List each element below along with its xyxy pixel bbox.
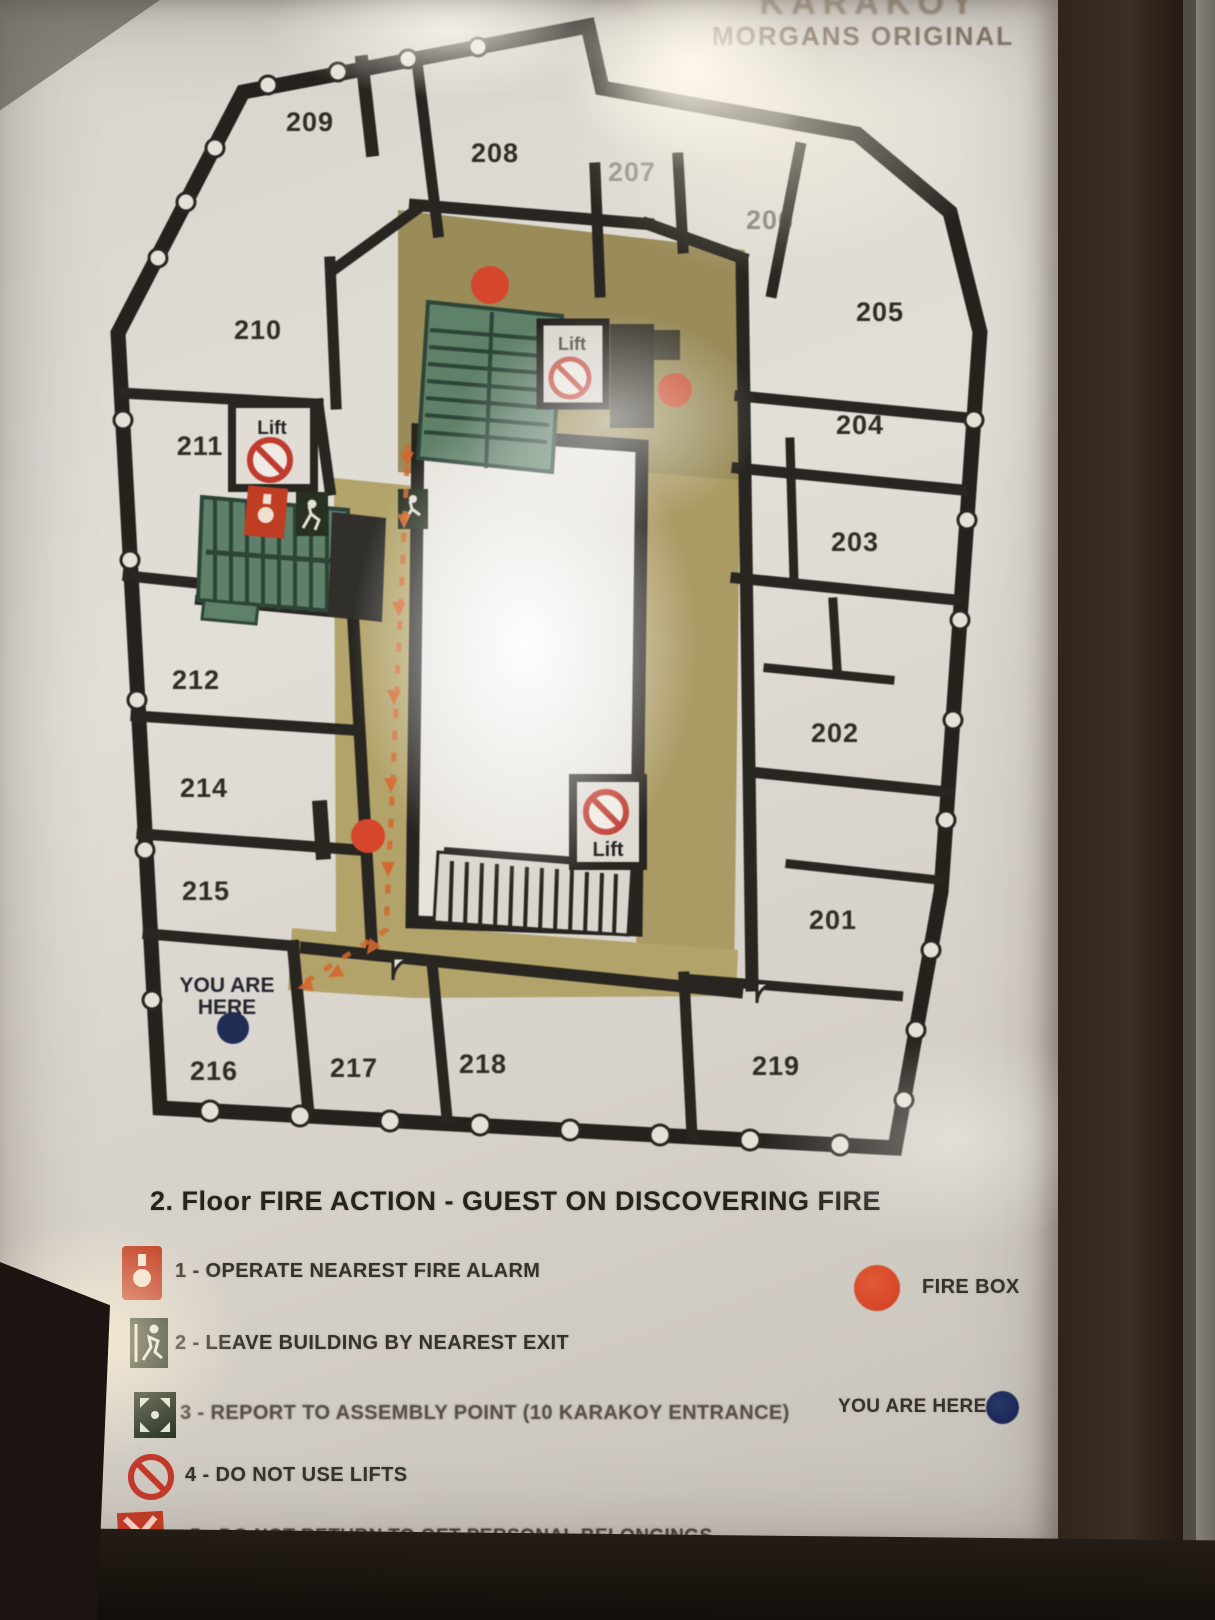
- fire-box-dot: [658, 373, 692, 407]
- lift-bottom: Lift: [573, 778, 643, 866]
- room-number: 204: [836, 410, 884, 440]
- room-number: 208: [471, 138, 519, 168]
- you-are-here-legend-dot: [986, 1391, 1019, 1424]
- room-number: 206: [746, 205, 794, 235]
- no-entry-icon: [250, 440, 290, 480]
- lift-room211: Lift: [232, 404, 314, 488]
- assembly-point-icon: [132, 1390, 178, 1440]
- fire-alarm-map-icon: [244, 485, 288, 538]
- no-entry-icon: [551, 359, 589, 397]
- fire-box-dot: [351, 819, 385, 853]
- lift-label: Lift: [558, 334, 586, 354]
- legend-item-4-label: 4 - DO NOT USE LIFTS: [185, 1464, 407, 1487]
- legend-item-2-label: 2 - LEAVE BUILDING BY NEAREST EXIT: [175, 1332, 569, 1355]
- exit-running-man-icon: [128, 1316, 170, 1370]
- room-number: 216: [190, 1056, 238, 1086]
- room-number: 217: [330, 1053, 378, 1083]
- legend-item-3-label: 3 - REPORT TO ASSEMBLY POINT (10 KARAKOY…: [180, 1402, 790, 1425]
- room-number: 211: [177, 431, 224, 461]
- room-number: 202: [811, 718, 859, 748]
- no-entry-icon: [586, 792, 626, 832]
- legend-item-1-label: 1 - OPERATE NEAREST FIRE ALARM: [175, 1260, 540, 1283]
- framed-fire-evacuation-sign-photo: KARAKOY MORGANS ORIGINAL: [0, 0, 1215, 1620]
- you-are-here-legend-label: YOU ARE HERE: [838, 1396, 987, 1418]
- exit-running-man-map-icon: [296, 492, 328, 536]
- room-number: 205: [856, 297, 904, 327]
- floor-plan: Lift Lift: [0, 0, 1215, 1620]
- fire-box-dot: [471, 266, 509, 304]
- room-number: 210: [234, 315, 282, 345]
- room-number: 214: [180, 773, 228, 803]
- room-number: 219: [752, 1051, 800, 1081]
- picture-frame-bottom: [0, 1528, 1215, 1620]
- room-number: 201: [809, 905, 857, 935]
- wall-strip: [1183, 0, 1196, 1620]
- fire-box-legend-dot: [854, 1265, 900, 1311]
- you-are-here-map-label-line2: HERE: [198, 996, 256, 1019]
- legend-title: 2. Floor FIRE ACTION - GUEST ON DISCOVER…: [150, 1186, 881, 1217]
- room-number: 207: [608, 157, 656, 187]
- room-number: 209: [286, 107, 334, 137]
- room-number: 212: [172, 665, 220, 695]
- room-number: 218: [459, 1049, 507, 1079]
- picture-frame-bottom-left: [0, 1262, 110, 1620]
- lift-label: Lift: [257, 418, 287, 439]
- no-lifts-icon: [126, 1452, 176, 1502]
- room-number: 203: [831, 527, 879, 557]
- lift-label: Lift: [592, 839, 623, 861]
- room-number: 215: [182, 876, 230, 906]
- stairs-left: [198, 497, 386, 624]
- fire-box-label: FIRE BOX: [922, 1276, 1020, 1299]
- wall-strip: [1196, 0, 1215, 1620]
- fire-alarm-icon: [120, 1244, 164, 1302]
- you-are-here-map-label-line1: YOU ARE: [180, 974, 275, 997]
